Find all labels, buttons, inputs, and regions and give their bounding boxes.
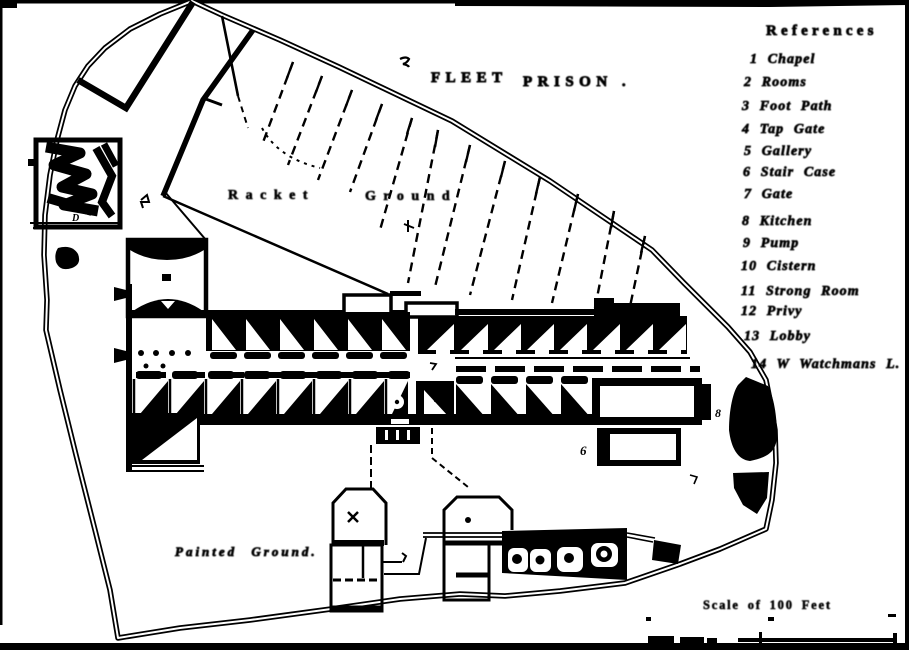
svg-text:Ground: Ground <box>365 189 457 204</box>
svg-text:12 Privy: 12 Privy <box>741 304 803 319</box>
svg-text:13 Lobby: 13 Lobby <box>744 329 811 344</box>
svg-text:5 Gallery: 5 Gallery <box>744 144 812 159</box>
svg-text:Racket: Racket <box>228 188 315 203</box>
svg-text:8 Kitchen: 8 Kitchen <box>742 214 813 229</box>
svg-text:11 Strong Room: 11 Strong Room <box>741 284 860 299</box>
svg-text:8: 8 <box>715 406 721 420</box>
svg-text:1 Chapel: 1 Chapel <box>750 52 816 67</box>
svg-text:6 Stair Case: 6 Stair Case <box>743 165 836 180</box>
svg-text:7 Gate: 7 Gate <box>744 187 793 202</box>
svg-text:FLEET: FLEET <box>431 70 508 86</box>
svg-text:6: 6 <box>580 443 587 458</box>
svg-text:PRISON .: PRISON . <box>523 74 631 90</box>
svg-text:Scale of 100 Feet: Scale of 100 Feet <box>703 598 832 612</box>
svg-text:4 Tap Gate: 4 Tap Gate <box>741 122 825 137</box>
svg-text:10 Cistern: 10 Cistern <box>741 259 817 274</box>
svg-text:References: References <box>766 23 878 39</box>
svg-text:2 Rooms: 2 Rooms <box>743 75 807 90</box>
svg-text:14 W Watchmans L.: 14 W Watchmans L. <box>751 357 900 372</box>
svg-text:Painted Ground.: Painted Ground. <box>175 544 318 559</box>
svg-text:9 Pump: 9 Pump <box>743 236 799 251</box>
svg-text:3 Foot Path: 3 Foot Path <box>741 99 833 114</box>
